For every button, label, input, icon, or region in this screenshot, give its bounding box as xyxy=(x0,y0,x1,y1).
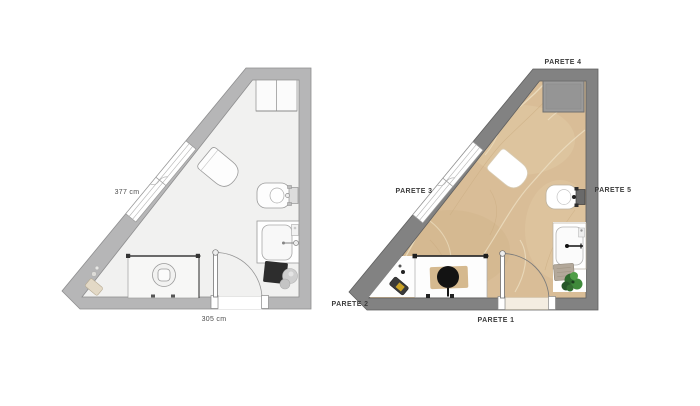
wall-label-parete-4: PARETE 4 xyxy=(545,59,582,66)
wall-label-parete-5: PARETE 5 xyxy=(595,187,632,194)
plan-right-furnished: PARETE 4 PARETE 3 PARETE 5 PARETE 2 PARE… xyxy=(332,59,632,324)
floor-plans-svg: 377 cm 305 cm xyxy=(0,0,700,406)
dim-label-diagonal: 377 cm xyxy=(115,189,140,196)
washbasin-icon xyxy=(257,221,299,263)
dim-label-bottom: 305 cm xyxy=(202,316,227,323)
wall-cabinet-icon xyxy=(256,80,297,111)
door-threshold xyxy=(218,297,262,310)
door-threshold xyxy=(505,298,549,310)
wall-label-parete-3: PARETE 3 xyxy=(396,188,433,195)
wall-label-parete-1: PARETE 1 xyxy=(478,317,515,324)
shower-icon xyxy=(413,254,489,298)
floor-plan-comparison: 377 cm 305 cm xyxy=(0,0,700,406)
shower-icon xyxy=(126,254,201,298)
wall-niche-icon xyxy=(543,81,584,112)
plan-left-empty: 377 cm 305 cm xyxy=(62,68,311,323)
wall-label-parete-2: PARETE 2 xyxy=(332,301,369,308)
